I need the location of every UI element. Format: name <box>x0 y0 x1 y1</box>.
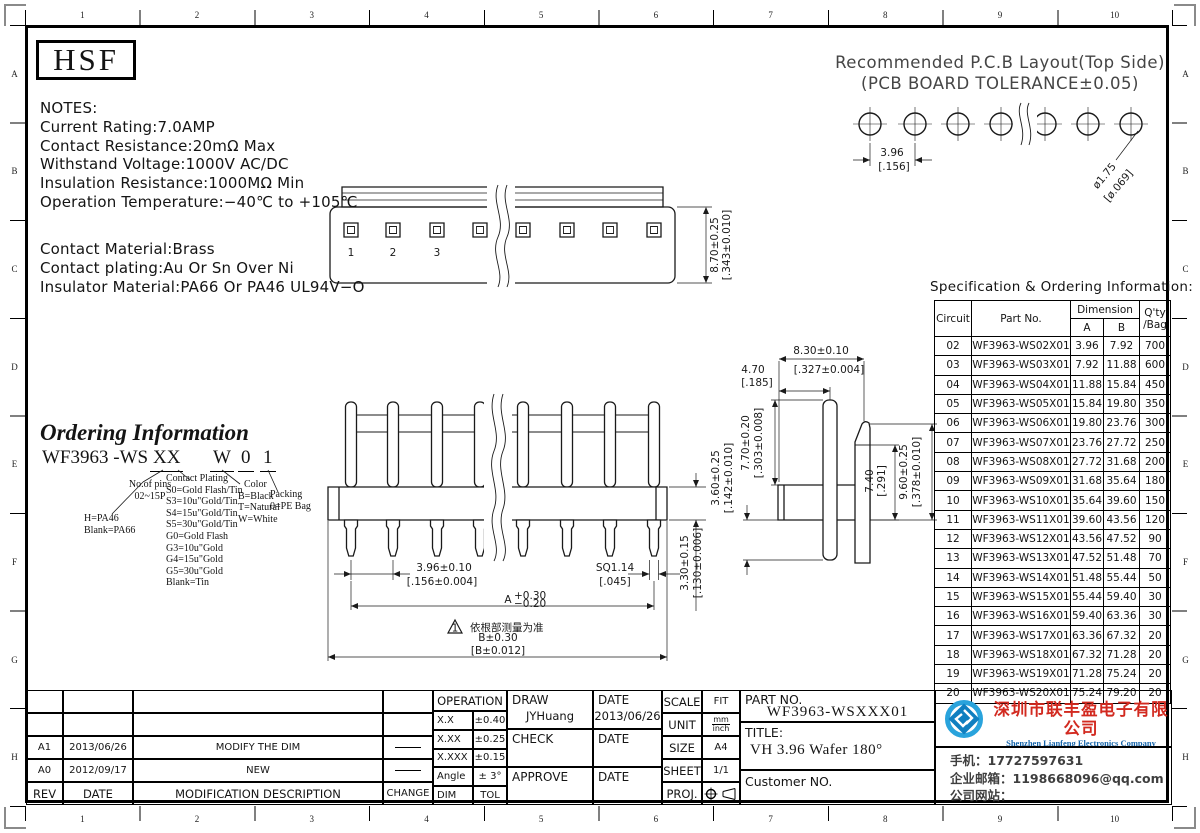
pcb-title-line2: (PCB BOARD TOLERANCE±0.05) <box>828 73 1172 94</box>
spec-cell-qty: 120 <box>1140 510 1171 529</box>
note-line: Operation Temperature:−40℃ to +105℃ <box>40 193 358 212</box>
draw-date: 2013/06/26 <box>594 709 660 723</box>
spec-cell-dim-b: 11.88 <box>1104 356 1140 375</box>
note-line: Insulation Resistance:1000MΩ Min <box>40 174 358 193</box>
spec-table-row: 03 WF3963-WS03X01 7.92 11.88 600 <box>935 356 1171 375</box>
hsf-logo: HSF <box>36 40 136 80</box>
zone-label: A <box>7 25 22 123</box>
unit-inch: inch <box>712 725 730 733</box>
rev-cell <box>133 690 383 713</box>
note-line: Contact plating:Au Or Sn Over Ni <box>40 259 365 278</box>
side-view-drawing: 8.30±0.10 [.327±0.004] 4.70 [.185] 7.70±… <box>713 333 948 578</box>
revision-table: A1 2013/06/26 MODIFY THE DIM A0 2012/09/… <box>26 690 433 805</box>
zone-label: D <box>7 318 22 416</box>
zone-label: 8 <box>828 811 943 826</box>
spec-table-row: 04 WF3963-WS04X01 11.88 15.84 450 <box>935 375 1171 394</box>
spec-cell-dim-a: 11.88 <box>1071 375 1104 394</box>
rev-description: NEW <box>133 759 383 782</box>
date-label: DATE <box>598 732 629 746</box>
spec-table-row: 09 WF3963-WS09X01 31.68 35.64 180 <box>935 472 1171 491</box>
spec-cell-part-no: WF3963-WS03X01 <box>972 356 1071 375</box>
rev-description: MODIFY THE DIM <box>133 736 383 759</box>
zone-label: C <box>1178 220 1193 318</box>
zone-numbers-top: 12345678910 <box>25 7 1172 22</box>
tolerance-dim: X.X <box>433 711 473 730</box>
note-line: Contact Resistance:20mΩ Max <box>40 137 358 156</box>
tolerance-value: ± 3° <box>473 767 507 786</box>
zone-label: 3 <box>254 811 369 826</box>
size-label: SIZE <box>662 736 702 759</box>
spec-table-row: 11 WF3963-WS11X01 39.60 43.56 120 <box>935 510 1171 529</box>
rev-header-change: CHANGE <box>383 782 433 805</box>
spec-cell-part-no: WF3963-WS11X01 <box>972 510 1071 529</box>
spec-cell-dim-a: 63.36 <box>1071 626 1104 645</box>
pcb-pitch-dim: 3.96 <box>880 147 904 159</box>
zone-label: F <box>7 513 22 611</box>
spec-cell-dim-b: 7.92 <box>1104 337 1140 356</box>
customer-no-cell: Customer NO. <box>740 770 935 805</box>
ordering-option: Blank=Tin <box>166 577 243 589</box>
spec-cell-qty: 600 <box>1140 356 1171 375</box>
spec-cell-dim-b: 27.72 <box>1104 433 1140 452</box>
sheet-info-block: SCALE FIT UNIT mm inch SIZE A4 SHEET 1/1… <box>662 690 740 805</box>
ordering-option: S3=10u"Gold/Tin <box>166 496 243 508</box>
body-height-dim: 8.70±0.25 <box>709 217 721 273</box>
rev-cell <box>383 690 433 713</box>
zone-label: D <box>1178 318 1193 416</box>
note-line: Insulator Material:PA66 Or PA46 UL94V−O <box>40 278 365 297</box>
approve-cell: APPROVE <box>507 767 593 805</box>
zone-label: G <box>7 611 22 709</box>
spec-cell-circuit: 07 <box>935 433 972 452</box>
zone-label: E <box>7 416 22 514</box>
zone-label: F <box>1178 513 1193 611</box>
spec-cell-part-no: WF3963-WS16X01 <box>972 607 1071 626</box>
ordering-option: H=PA46 <box>84 513 135 525</box>
spec-cell-circuit: 11 <box>935 510 972 529</box>
spec-col-circuit: Circuit <box>935 301 972 337</box>
rev-date: 2013/06/26 <box>63 736 133 759</box>
spec-cell-dim-a: 51.48 <box>1071 568 1104 587</box>
ordering-option: S4=15u"Gold/Tin <box>166 508 243 520</box>
zone-label: 10 <box>1057 811 1172 826</box>
rev-header-rev: REV <box>26 782 63 805</box>
spec-cell-dim-a: 31.68 <box>1071 472 1104 491</box>
notes-block: NOTES: Current Rating:7.0AMPContact Resi… <box>40 99 358 212</box>
tolerance-value: ±0.15 <box>473 749 507 768</box>
part-no-cell: PART NO. WF3963-WSXXX01 <box>740 690 935 722</box>
spec-cell-dim-b: 47.52 <box>1104 529 1140 548</box>
note-line: Contact Material:Brass <box>40 240 365 259</box>
ordering-plating-options: Contact Plating S0=Gold Flash/TinS3=10u"… <box>166 473 243 589</box>
draw-date-cell: DATE2013/06/26 <box>593 690 662 729</box>
spec-table-row: 07 WF3963-WS07X01 23.76 27.72 250 <box>935 433 1171 452</box>
rev-header-description: MODIFICATION DESCRIPTION <box>133 782 383 805</box>
spec-cell-dim-b: 39.60 <box>1104 491 1140 510</box>
note-line: Current Rating:7.0AMP <box>40 118 358 137</box>
spec-table: Circuit Part No. Dimension Q'ty/Bag A B … <box>934 300 1171 704</box>
zone-label: 4 <box>369 7 484 22</box>
spec-cell-circuit: 15 <box>935 587 972 606</box>
hsf-logo-text: HSF <box>53 42 119 78</box>
spec-table-row: 16 WF3963-WS16X01 59.40 63.36 30 <box>935 607 1171 626</box>
spec-table-row: 15 WF3963-WS15X01 55.44 59.40 30 <box>935 587 1171 606</box>
spec-cell-part-no: WF3963-WS09X01 <box>972 472 1071 491</box>
spec-cell-dim-b: 15.84 <box>1104 375 1140 394</box>
spec-table-row: 10 WF3963-WS10X01 35.64 39.60 150 <box>935 491 1171 510</box>
spec-cell-qty: 30 <box>1140 607 1171 626</box>
no-change-dash <box>395 770 421 771</box>
pin-number: 2 <box>390 247 397 259</box>
tolerance-value: ±0.40 <box>473 711 507 730</box>
corner-mark <box>4 807 26 829</box>
spec-cell-dim-a: 15.84 <box>1071 394 1104 413</box>
pitch-dim-inch: [.156±0.004] <box>407 576 477 588</box>
dim-a-tol-lower: −0.20 <box>514 598 546 610</box>
spec-table-row: 06 WF3963-WS06X01 19.80 23.76 300 <box>935 414 1171 433</box>
spec-table-row: 05 WF3963-WS05X01 15.84 19.80 350 <box>935 394 1171 413</box>
spec-cell-dim-a: 55.44 <box>1071 587 1104 606</box>
rev-change <box>383 759 433 782</box>
size-value: A4 <box>702 736 740 759</box>
pcb-layout-drawing: 3.96 [.156] ø1.75 [ø.069] <box>845 100 1155 196</box>
pin-number: 3 <box>434 247 441 259</box>
ordering-option: 0=PE Bag <box>270 501 311 513</box>
spec-col-b: B <box>1104 319 1140 337</box>
zone-label: 1 <box>25 7 140 22</box>
material-notes-block: Contact Material:BrassContact plating:Au… <box>40 240 365 296</box>
ordering-option: S0=Gold Flash/Tin <box>166 485 243 497</box>
spec-cell-dim-a: 3.96 <box>1071 337 1104 356</box>
lock-dim: 7.40 <box>864 469 876 492</box>
drawing-sheet: 12345678910 12345678910 ABCDEFGH ABCDEFG… <box>0 0 1200 833</box>
zone-label: 2 <box>140 7 255 22</box>
zone-label: 9 <box>943 7 1058 22</box>
spec-cell-dim-a: 19.80 <box>1071 414 1104 433</box>
title-label: TITLE: <box>745 725 783 740</box>
approve-label: APPROVE <box>512 770 568 784</box>
company-logo-icon <box>942 697 986 741</box>
spec-cell-dim-a: 47.52 <box>1071 549 1104 568</box>
spec-cell-dim-b: 31.68 <box>1104 452 1140 471</box>
drawing-title: VH 3.96 Wafer 180° <box>750 742 883 759</box>
spec-table-row: 18 WF3963-WS18X01 67.32 71.28 20 <box>935 645 1171 664</box>
part-no-value: WF3963-WSXXX01 <box>741 704 934 721</box>
rev-cell <box>26 690 63 713</box>
spec-cell-circuit: 03 <box>935 356 972 375</box>
spec-cell-dim-b: 75.24 <box>1104 665 1140 684</box>
company-name-cn: 深圳市联丰盈电子有限公司 <box>992 700 1170 738</box>
zone-label: 3 <box>254 7 369 22</box>
tolerance-dim: Angle <box>433 767 473 786</box>
zone-label: 7 <box>713 7 828 22</box>
rev-cell <box>383 713 433 736</box>
notes-title: NOTES: <box>40 99 358 118</box>
company-name-en: Shenzhen Lianfeng Electronics Company Li… <box>992 738 1170 747</box>
spec-table-row: 14 WF3963-WS14X01 51.48 55.44 50 <box>935 568 1171 587</box>
date-label: DATE <box>598 770 629 784</box>
top-view-drawing: 1 2 3 8.70±0.25 [.343±0.010] <box>328 183 733 295</box>
tolerance-dim: X.XXX <box>433 749 473 768</box>
zone-label: C <box>7 220 22 318</box>
draw-cell: DRAWJYHuang <box>507 690 593 729</box>
note-flag-number: 1 <box>452 623 459 635</box>
zone-label: 1 <box>25 811 140 826</box>
ordering-option: G5=30u"Gold <box>166 566 243 578</box>
spec-cell-qty: 50 <box>1140 568 1171 587</box>
draw-label: DRAW <box>512 693 549 707</box>
spec-cell-part-no: WF3963-WS14X01 <box>972 568 1071 587</box>
spec-cell-qty: 20 <box>1140 626 1171 645</box>
spec-cell-circuit: 13 <box>935 549 972 568</box>
spec-cell-part-no: WF3963-WS13X01 <box>972 549 1071 568</box>
pcb-pitch-dim-inch: [.156] <box>878 161 910 173</box>
no-change-dash <box>395 747 421 748</box>
spec-cell-circuit: 12 <box>935 529 972 548</box>
check-date-cell: DATE <box>593 729 662 767</box>
bar-height-dim: 3.30±0.15 <box>679 535 691 591</box>
rev-cell <box>63 713 133 736</box>
rev-id: A0 <box>26 759 63 782</box>
spec-cell-circuit: 16 <box>935 607 972 626</box>
spec-cell-qty: 150 <box>1140 491 1171 510</box>
spec-table-row: 13 WF3963-WS13X01 47.52 51.48 70 <box>935 549 1171 568</box>
offset-dim-inch: [.185] <box>741 377 773 389</box>
spec-cell-part-no: WF3963-WS02X01 <box>972 337 1071 356</box>
spec-cell-part-no: WF3963-WS17X01 <box>972 626 1071 645</box>
pitch-dim: 3.96±0.10 <box>416 562 472 574</box>
lock-height-dim: 9.60±0.25 <box>898 444 910 500</box>
dim-b-inch: [B±0.012] <box>471 645 525 657</box>
zone-label: 5 <box>484 7 599 22</box>
pin-up-dim-inch: [.303±0.008] <box>753 408 765 478</box>
spec-cell-part-no: WF3963-WS04X01 <box>972 375 1071 394</box>
spec-table-title: Specification & Ordering Information: <box>930 279 1193 295</box>
tolerance-dim: X.XX <box>433 730 473 749</box>
spec-table-row: 02 WF3963-WS02X01 3.96 7.92 700 <box>935 337 1171 356</box>
spec-cell-dim-a: 35.64 <box>1071 491 1104 510</box>
spec-table-row: 08 WF3963-WS08X01 27.72 31.68 200 <box>935 452 1171 471</box>
front-view-drawing: 3.96±0.10 [.156±0.004] SQ1.14 [.045] A +… <box>322 393 732 668</box>
spec-table-row: 17 WF3963-WS17X01 63.36 67.32 20 <box>935 626 1171 645</box>
zone-label: 8 <box>828 7 943 22</box>
unit-label: UNIT <box>662 713 702 736</box>
spec-cell-dim-b: 43.56 <box>1104 510 1140 529</box>
spec-cell-circuit: 14 <box>935 568 972 587</box>
unit-value: mm inch <box>702 713 740 736</box>
spec-col-qty: Q'ty/Bag <box>1140 301 1171 337</box>
zone-letters-right: ABCDEFGH <box>1178 25 1193 806</box>
spec-cell-dim-b: 67.32 <box>1104 626 1140 645</box>
title-block: A1 2013/06/26 MODIFY THE DIM A0 2012/09/… <box>26 690 1172 805</box>
date-label: DATE <box>598 693 629 707</box>
projection-symbol-icon <box>702 782 740 805</box>
company-contact-cell: 手机：17727597631 企业邮箱：1198668096@qq.com 公司… <box>935 747 1172 805</box>
zone-label: H <box>1178 708 1193 806</box>
spec-cell-dim-a: 67.32 <box>1071 645 1104 664</box>
spec-col-part: Part No. <box>972 301 1071 337</box>
spec-cell-circuit: 02 <box>935 337 972 356</box>
spec-cell-dim-a: 7.92 <box>1071 356 1104 375</box>
corner-mark <box>4 4 26 26</box>
zone-label: B <box>7 123 22 221</box>
ordering-option: W=White <box>238 514 280 526</box>
offset-dim: 4.70 <box>741 364 764 376</box>
spec-cell-qty: 180 <box>1140 472 1171 491</box>
spec-cell-dim-b: 19.80 <box>1104 394 1140 413</box>
rev-change <box>383 736 433 759</box>
lock-dim-inch: [.291] <box>876 465 888 497</box>
spec-cell-qty: 300 <box>1140 414 1171 433</box>
operation-header: OPERATION <box>433 690 507 711</box>
draw-name: JYHuang <box>526 709 574 723</box>
spec-cell-dim-b: 55.44 <box>1104 568 1140 587</box>
tolerance-block: OPERATION X.X ±0.40 X.XX ±0.25 X.XXX ±0.… <box>433 690 507 805</box>
spec-cell-dim-a: 27.72 <box>1071 452 1104 471</box>
spec-cell-circuit: 09 <box>935 472 972 491</box>
ordering-part-base: WF3963 -WS <box>42 447 148 469</box>
spec-cell-circuit: 04 <box>935 375 972 394</box>
spec-cell-dim-b: 23.76 <box>1104 414 1140 433</box>
spec-cell-circuit: 08 <box>935 452 972 471</box>
zone-label: E <box>1178 416 1193 514</box>
rev-cell <box>26 713 63 736</box>
bar-height-dim-inch: [.130±0.006] <box>692 528 704 598</box>
zone-label: 6 <box>599 7 714 22</box>
spec-cell-dim-b: 51.48 <box>1104 549 1140 568</box>
scale-label: SCALE <box>662 690 702 713</box>
zone-label: 5 <box>484 811 599 826</box>
spec-cell-qty: 70 <box>1140 549 1171 568</box>
spec-cell-dim-a: 39.60 <box>1071 510 1104 529</box>
spec-cell-dim-a: 23.76 <box>1071 433 1104 452</box>
scale-value: FIT <box>702 690 740 713</box>
spec-cell-part-no: WF3963-WS06X01 <box>972 414 1071 433</box>
title-cell: TITLE: VH 3.96 Wafer 180° <box>740 722 935 770</box>
zone-label: 2 <box>140 811 255 826</box>
approve-date-cell: DATE <box>593 767 662 805</box>
spec-cell-circuit: 05 <box>935 394 972 413</box>
zone-label: 7 <box>713 811 828 826</box>
dim-a-letter: A <box>504 594 512 606</box>
ordering-option: G3=10u"Gold <box>166 543 243 555</box>
tolerance-value: TOL <box>473 786 507 805</box>
spec-cell-qty: 450 <box>1140 375 1171 394</box>
spec-cell-circuit: 19 <box>935 665 972 684</box>
spec-cell-circuit: 18 <box>935 645 972 664</box>
ordering-material-options: H=PA46Blank=PA66 <box>84 513 135 536</box>
width-dim-inch: [.327±0.004] <box>794 364 864 376</box>
rev-header-date: DATE <box>63 782 133 805</box>
width-dim: 8.30±0.10 <box>793 345 849 357</box>
rev-date: 2012/09/17 <box>63 759 133 782</box>
pcb-title-line1: Recommended P.C.B Layout(Top Side) <box>828 52 1172 73</box>
pcb-layout-title: Recommended P.C.B Layout(Top Side) (PCB … <box>828 52 1172 94</box>
spec-cell-part-no: WF3963-WS08X01 <box>972 452 1071 471</box>
ordering-title: Ordering Information <box>40 420 249 446</box>
spec-cell-dim-b: 59.40 <box>1104 587 1140 606</box>
sheet-label: SHEET <box>662 759 702 782</box>
spec-cell-part-no: WF3963-WS07X01 <box>972 433 1071 452</box>
spec-cell-dim-a: 43.56 <box>1071 529 1104 548</box>
company-website: 公司网站：http://www.szlfying.com <box>950 787 1171 805</box>
zone-label: 10 <box>1057 7 1172 22</box>
spec-cell-dim-b: 71.28 <box>1104 645 1140 664</box>
check-cell: CHECK <box>507 729 593 767</box>
zone-label: 9 <box>943 811 1058 826</box>
spec-cell-part-no: WF3963-WS19X01 <box>972 665 1071 684</box>
zone-label: B <box>1178 123 1193 221</box>
zone-label: H <box>7 708 22 806</box>
spec-cell-qty: 90 <box>1140 529 1171 548</box>
note-line: Withstand Voltage:1000V AC/DC <box>40 155 358 174</box>
spec-cell-dim-a: 59.40 <box>1071 607 1104 626</box>
company-phone: 手机：17727597631 <box>950 752 1171 770</box>
company-email: 企业邮箱：1198668096@qq.com <box>950 770 1171 788</box>
pin-down-dim-inch: [.142±0.010] <box>723 443 735 513</box>
rev-cell <box>63 690 133 713</box>
zone-letters-left: ABCDEFGH <box>7 25 22 806</box>
spec-cell-qty: 20 <box>1140 645 1171 664</box>
spec-cell-circuit: 10 <box>935 491 972 510</box>
projection-label: PROJ. <box>662 782 702 805</box>
spec-cell-dim-b: 63.36 <box>1104 607 1140 626</box>
spec-cell-qty: 700 <box>1140 337 1171 356</box>
ordering-option: Blank=PA66 <box>84 525 135 537</box>
ordering-option: G4=15u"Gold <box>166 554 243 566</box>
pin-up-dim: 7.70±0.20 <box>740 415 752 471</box>
lock-height-dim-inch: [.378±0.010] <box>911 437 923 507</box>
spec-cell-qty: 30 <box>1140 587 1171 606</box>
zone-label: 4 <box>369 811 484 826</box>
spec-cell-qty: 250 <box>1140 433 1171 452</box>
tolerance-dim: DIM <box>433 786 473 805</box>
body-height-dim-inch: [.343±0.010] <box>721 210 733 280</box>
spec-cell-qty: 20 <box>1140 665 1171 684</box>
sheet-value: 1/1 <box>702 759 740 782</box>
pin-square-dim-inch: [.045] <box>599 576 631 588</box>
rev-id: A1 <box>26 736 63 759</box>
signature-block: DRAWJYHuang DATE2013/06/26 CHECK DATE AP… <box>507 690 662 805</box>
spec-cell-dim-a: 71.28 <box>1071 665 1104 684</box>
company-name-cell: 深圳市联丰盈电子有限公司 Shenzhen Lianfeng Electroni… <box>935 690 1172 747</box>
spec-cell-part-no: WF3963-WS05X01 <box>972 394 1071 413</box>
spec-cell-qty: 200 <box>1140 452 1171 471</box>
ordering-option: S5=30u"Gold/Tin <box>166 519 243 531</box>
pin-down-dim: 3.60±0.25 <box>710 450 722 506</box>
spec-cell-circuit: 06 <box>935 414 972 433</box>
tolerance-value: ±0.25 <box>473 730 507 749</box>
corner-mark <box>1174 807 1196 829</box>
spec-table-row: 12 WF3963-WS12X01 43.56 47.52 90 <box>935 529 1171 548</box>
pin-number: 1 <box>348 247 355 259</box>
spec-col-a: A <box>1071 319 1104 337</box>
spec-cell-part-no: WF3963-WS18X01 <box>972 645 1071 664</box>
spec-col-dimension: Dimension <box>1071 301 1140 319</box>
spec-cell-part-no: WF3963-WS12X01 <box>972 529 1071 548</box>
zone-label: G <box>1178 611 1193 709</box>
ordering-option: G0=Gold Flash <box>166 531 243 543</box>
check-label: CHECK <box>512 732 553 746</box>
spec-cell-qty: 350 <box>1140 394 1171 413</box>
spec-cell-part-no: WF3963-WS15X01 <box>972 587 1071 606</box>
zone-numbers-bottom: 12345678910 <box>25 811 1172 826</box>
ordering-packing-options: Packing 0=PE Bag <box>270 489 311 512</box>
rev-cell <box>133 713 383 736</box>
spec-cell-part-no: WF3963-WS10X01 <box>972 491 1071 510</box>
zone-label: A <box>1178 25 1193 123</box>
spec-table-row: 19 WF3963-WS19X01 71.28 75.24 20 <box>935 665 1171 684</box>
